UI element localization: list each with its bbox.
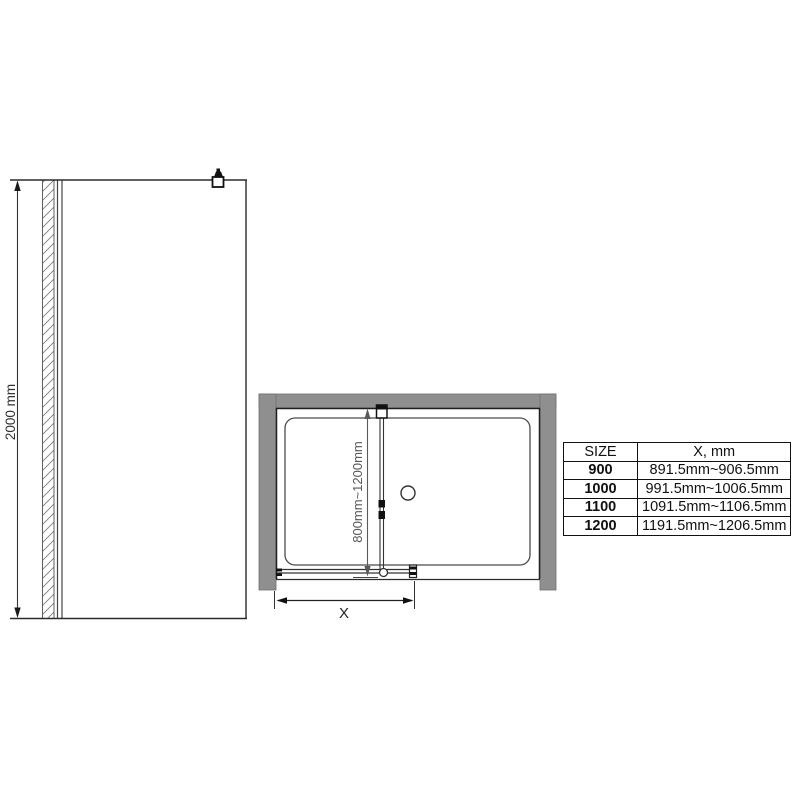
arrow-up-icon — [14, 181, 20, 192]
door-top-bracket-icon — [377, 405, 388, 418]
arrow-left-icon — [277, 597, 288, 604]
x-range-value: 891.5mm~906.5mm — [638, 461, 791, 480]
height-dimension: 2000 mm — [3, 181, 21, 619]
table-row: 1000 991.5mm~1006.5mm — [564, 480, 791, 499]
size-value: 1000 — [564, 480, 638, 499]
drain-icon — [401, 486, 415, 500]
x-range-value: 1091.5mm~1106.5mm — [638, 498, 791, 517]
diagram-page: 2000 mm — [0, 0, 800, 800]
arrow-up-icon — [364, 409, 370, 420]
x-dimension: X — [275, 581, 415, 622]
size-value: 900 — [564, 461, 638, 480]
size-table-header-row: SIZE X, mm — [564, 443, 791, 462]
bottom-rail — [276, 565, 417, 578]
table-row: 1100 1091.5mm~1106.5mm — [564, 498, 791, 517]
wall-hatch — [43, 180, 55, 619]
arrow-down-icon — [14, 608, 20, 619]
wall-profile — [58, 180, 63, 619]
front-view: 2000 mm — [3, 169, 247, 619]
size-table: SIZE X, mm 900 891.5mm~906.5mm 1000 991.… — [563, 442, 791, 536]
size-value: 1200 — [564, 517, 638, 536]
arrow-down-icon — [364, 566, 370, 577]
door-width-range-label: 800mm~1200mm — [350, 441, 365, 543]
x-range-value: 991.5mm~1006.5mm — [638, 480, 791, 499]
size-value: 1100 — [564, 498, 638, 517]
shower-enclosure-drawing: 2000 mm — [0, 0, 800, 800]
door-roller-icon — [380, 569, 388, 577]
x-mm-column-header: X, mm — [638, 443, 791, 462]
size-column-header: SIZE — [564, 443, 638, 462]
rail-wall-anchor-icon — [276, 569, 282, 572]
table-row: 900 891.5mm~906.5mm — [564, 461, 791, 480]
x-range-value: 1191.5mm~1206.5mm — [638, 517, 791, 536]
wall-bracket-icon — [213, 169, 224, 188]
table-row: 1200 1191.5mm~1206.5mm — [564, 517, 791, 536]
x-dimension-label: X — [339, 605, 349, 622]
height-dimension-label: 2000 mm — [3, 384, 18, 440]
arrow-right-icon — [403, 597, 414, 604]
plan-view: 800mm~1200mm X — [259, 394, 556, 622]
